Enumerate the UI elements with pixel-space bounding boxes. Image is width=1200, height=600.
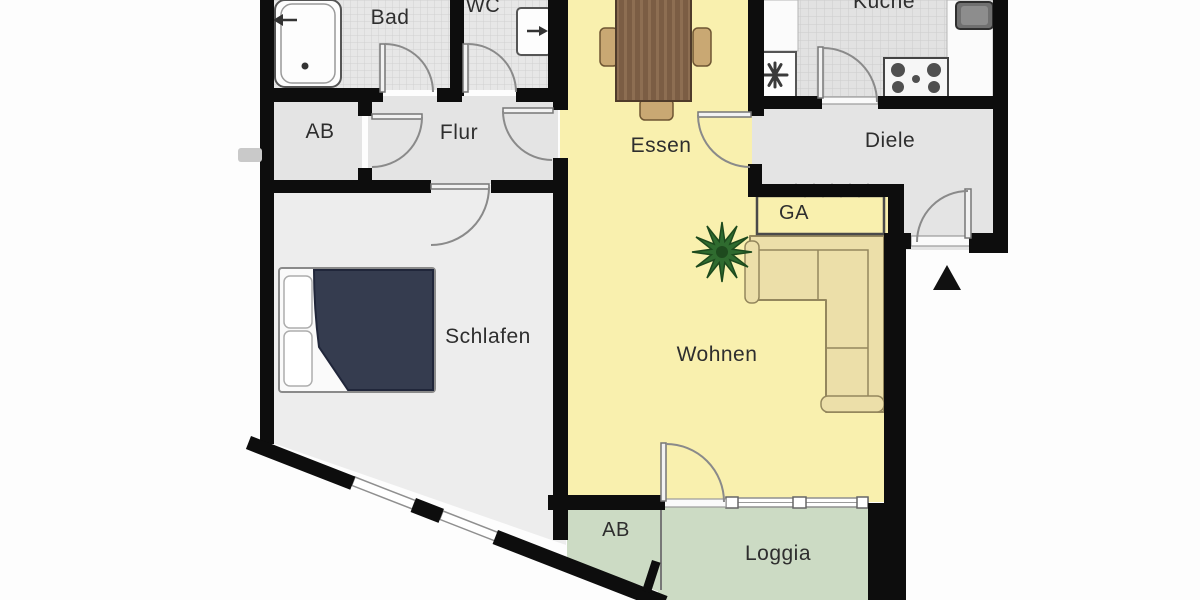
room-label-ab-upper: AB (305, 120, 334, 143)
door-leaf (661, 443, 666, 501)
room-label-ga: GA (779, 202, 809, 224)
door-leaf (380, 44, 385, 92)
door-leaf (965, 189, 971, 238)
door-leaf (503, 108, 553, 113)
door-leaf (372, 114, 422, 119)
wall-segment (888, 184, 904, 234)
wall-segment (750, 184, 898, 197)
threshold (911, 236, 971, 246)
threshold (820, 97, 878, 104)
stove-icon (884, 58, 948, 97)
door-leaf (431, 184, 489, 189)
door-leaf (818, 47, 823, 98)
wall-segment (993, 0, 1008, 250)
window-mullion (793, 497, 806, 508)
wall-protrusion (238, 148, 262, 162)
room-label-essen: Essen (631, 134, 692, 157)
bed-icon (279, 268, 435, 392)
wall-segment (260, 88, 383, 102)
pillow-icon (284, 331, 312, 386)
floor-plan: Bad WC Küche AB Flur Essen Diele GA Schl… (0, 0, 1200, 600)
wall-segment (868, 503, 906, 600)
wall-segment (437, 88, 462, 102)
chair-icon (693, 28, 711, 66)
wall-segment (260, 180, 431, 193)
window-mullion (857, 497, 868, 508)
room-label-diele: Diele (865, 129, 915, 152)
room-label-loggia: Loggia (745, 542, 811, 565)
room-label-wc: WC (466, 0, 500, 17)
door-leaf (463, 44, 468, 92)
kitchen-sink-icon (956, 2, 993, 29)
door-leaf (698, 112, 751, 117)
wall-segment (553, 183, 568, 540)
room-label-schlafen: Schlafen (445, 325, 531, 348)
chair-icon (640, 99, 673, 120)
threshold (663, 499, 726, 507)
washbasin-icon (517, 8, 551, 55)
wall-segment (358, 100, 372, 116)
wall-segment (548, 0, 568, 102)
wall-segment (450, 0, 464, 96)
window-mullion (726, 497, 738, 508)
wall-segment (884, 233, 906, 507)
kitchen-counter-left (759, 0, 798, 51)
bathtub-icon (273, 0, 341, 87)
wall-segment (358, 168, 372, 181)
room-label-ab-lower: AB (602, 519, 630, 541)
wall-segment (878, 96, 995, 109)
room-label-wohnen: Wohnen (677, 343, 758, 366)
wall-segment (748, 96, 822, 109)
room-label-bad: Bad (371, 6, 410, 29)
pillow-icon (284, 276, 312, 328)
room-label-kueche: Küche (853, 0, 915, 13)
room-label-flur: Flur (440, 121, 478, 144)
floor-plan-canvas: Bad WC Küche AB Flur Essen Diele GA Schl… (0, 0, 1200, 600)
wall-segment (553, 88, 568, 110)
wall-segment (260, 0, 274, 444)
wall-segment (548, 495, 665, 510)
